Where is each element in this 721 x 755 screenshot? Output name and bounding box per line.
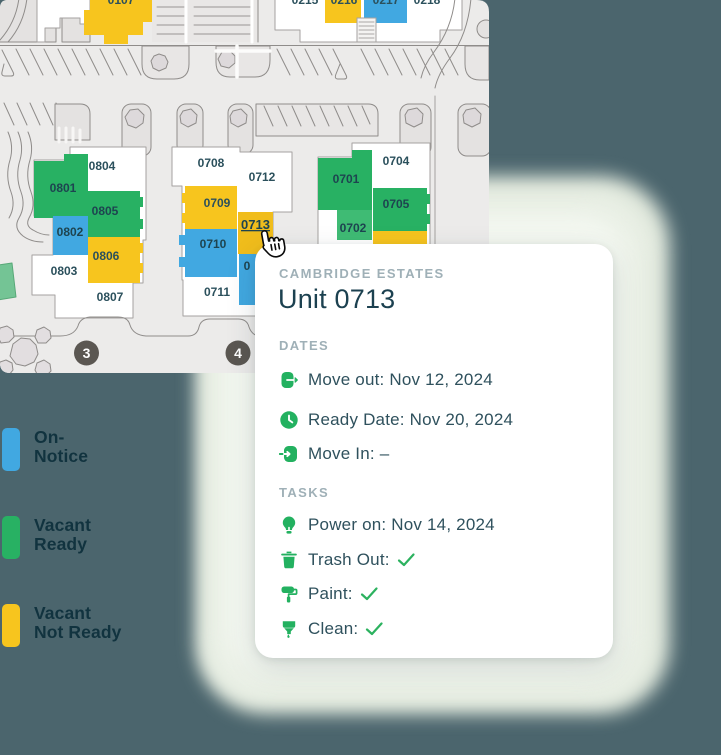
svg-text:0218: 0218 (414, 0, 441, 7)
svg-text:0711: 0711 (204, 285, 230, 299)
svg-text:0704: 0704 (383, 154, 410, 168)
svg-text:0710: 0710 (200, 237, 227, 251)
svg-text:0805: 0805 (92, 204, 119, 218)
svg-text:0107: 0107 (108, 0, 135, 7)
svg-text:0216: 0216 (331, 0, 358, 7)
svg-text:0217: 0217 (373, 0, 400, 7)
svg-text:0712: 0712 (249, 170, 276, 184)
svg-text:0803: 0803 (51, 264, 78, 278)
svg-text:0804: 0804 (89, 159, 116, 173)
svg-text:0705: 0705 (383, 197, 410, 211)
svg-text:0802: 0802 (57, 225, 84, 239)
svg-text:0215: 0215 (292, 0, 319, 7)
svg-text:0709: 0709 (204, 196, 231, 210)
svg-text:0: 0 (244, 259, 251, 273)
svg-text:3: 3 (83, 345, 91, 361)
svg-text:0806: 0806 (93, 249, 120, 263)
svg-text:0708: 0708 (198, 156, 225, 170)
svg-text:4: 4 (234, 345, 242, 361)
svg-text:0702: 0702 (340, 221, 367, 235)
svg-text:0701: 0701 (333, 172, 360, 186)
svg-text:0801: 0801 (50, 181, 77, 195)
svg-text:0807: 0807 (97, 290, 124, 304)
